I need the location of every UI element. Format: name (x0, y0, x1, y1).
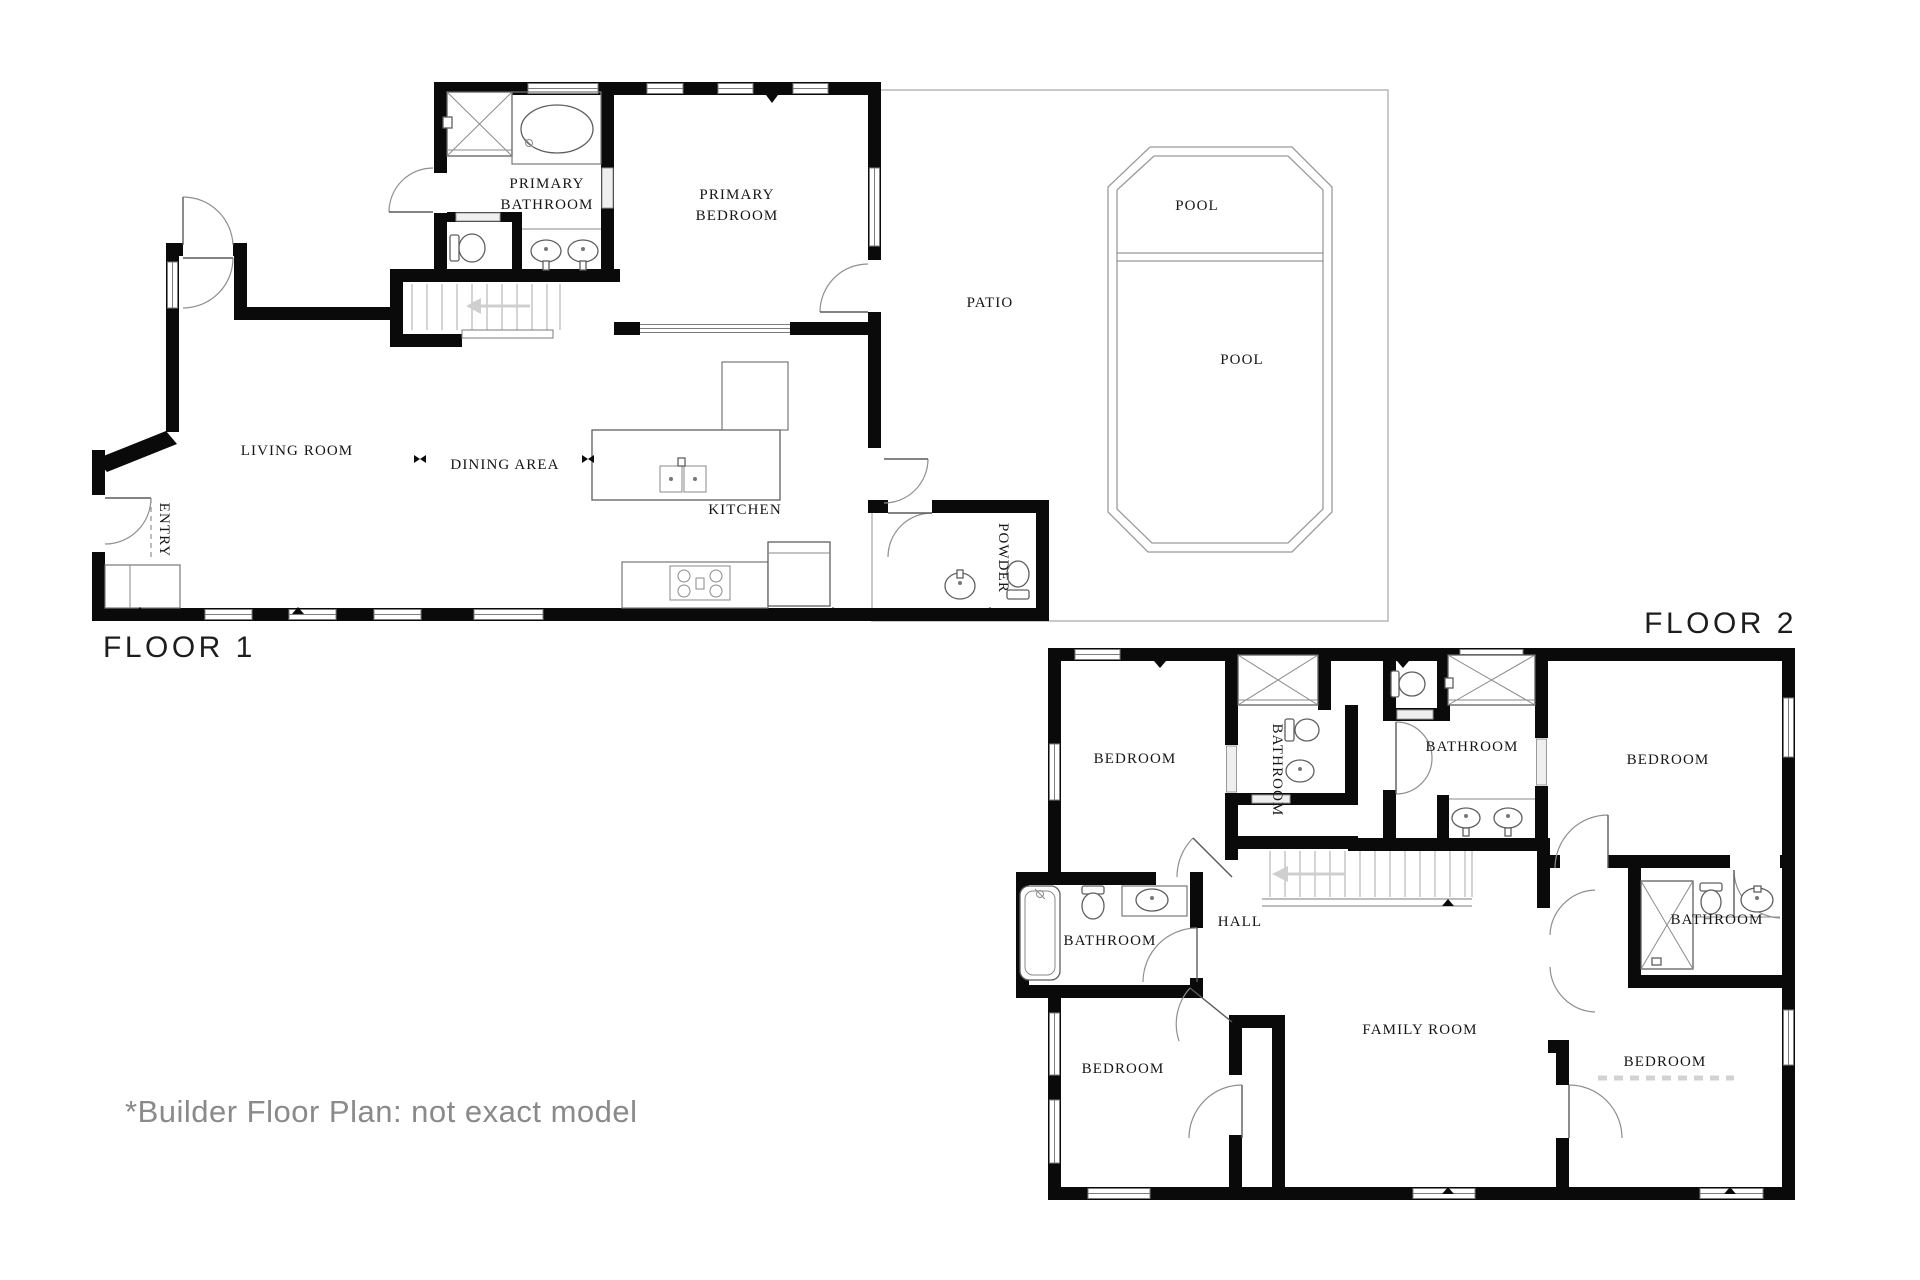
floor1-title: FLOOR 1 (103, 631, 256, 664)
kitchen-island-icon (592, 430, 780, 500)
room-label-primary-bathroom-line2: BATHROOM (501, 197, 594, 213)
refrigerator-icon (768, 542, 830, 606)
sink-icon-bath-top-left (1286, 760, 1314, 782)
dining-table-icon (722, 362, 788, 430)
room-label-primary-bedroom-line1: PRIMARY (699, 187, 774, 203)
room-label-pool-upper: POOL (1175, 198, 1219, 214)
floor-plan-page: PRIMARY BATHROOM PRIMARY BEDROOM PATIO P… (0, 0, 1920, 1280)
room-label-bedroom-bottom-right: BEDROOM (1624, 1054, 1707, 1070)
powder-sink-icon (945, 570, 975, 599)
staircase-floor2 (1262, 851, 1472, 906)
room-label-family-room: FAMILY ROOM (1362, 1022, 1477, 1038)
room-label-bathroom-middle: BATHROOM (1426, 739, 1519, 755)
toilet-icon (450, 234, 485, 262)
entry-closet-icon (105, 565, 180, 608)
room-label-bedroom-top-right: BEDROOM (1627, 752, 1710, 768)
room-label-bathroom-top-left: BATHROOM (1269, 724, 1285, 817)
room-label-dining-area: DINING AREA (450, 457, 559, 473)
vanity-sinks-icon-bath-middle (1449, 799, 1535, 836)
sink-icon-bath-left (1122, 886, 1187, 916)
toilet-icon-bath-right (1700, 883, 1722, 914)
stove-icon (670, 566, 730, 600)
floor2-title: FLOOR 2 (1644, 607, 1797, 640)
room-label-primary-bathroom-line1: PRIMARY (509, 176, 584, 192)
toilet-icon-bath-top-left (1285, 719, 1319, 741)
room-label-patio: PATIO (967, 295, 1014, 311)
room-label-pool-main: POOL (1220, 352, 1264, 368)
room-label-hall: HALL (1218, 914, 1262, 930)
room-label-kitchen: KITCHEN (708, 502, 782, 518)
floor2-plan: BEDROOM BATHROOM BATHROOM BEDROOM HALL B… (1016, 607, 1797, 1200)
room-label-bathroom-right: BATHROOM (1671, 912, 1764, 928)
shower-icon-bath-middle (1445, 655, 1535, 705)
room-label-living-room: LIVING ROOM (241, 443, 354, 459)
toilet-icon-bath-middle (1391, 671, 1425, 697)
vanity-sinks-icon (522, 229, 601, 270)
room-label-bathroom-left: BATHROOM (1064, 933, 1157, 949)
pool-icon (1108, 147, 1332, 552)
toilet-icon-bath-left (1082, 886, 1104, 919)
shower-icon-bath-top-left (1238, 655, 1318, 705)
room-label-bedroom-top-left: BEDROOM (1094, 751, 1177, 767)
floor1-plan: PRIMARY BATHROOM PRIMARY BEDROOM PATIO P… (92, 82, 1388, 664)
bathtub-icon-bath-left (1020, 886, 1060, 980)
staircase-floor1 (412, 284, 560, 338)
floor1-walls (92, 82, 1049, 621)
room-label-bedroom-bottom-left: BEDROOM (1082, 1061, 1165, 1077)
room-label-powder: POWDER (995, 523, 1011, 593)
shower-icon (443, 92, 512, 156)
bathtub-icon (512, 92, 601, 164)
wall-ticks-floor1 (134, 95, 996, 614)
kitchen-counter-icon (622, 562, 768, 608)
room-label-primary-bedroom-line2: BEDROOM (696, 208, 779, 224)
builder-note: *Builder Floor Plan: not exact model (125, 1094, 638, 1129)
room-label-entry: ENTRY (156, 503, 172, 558)
